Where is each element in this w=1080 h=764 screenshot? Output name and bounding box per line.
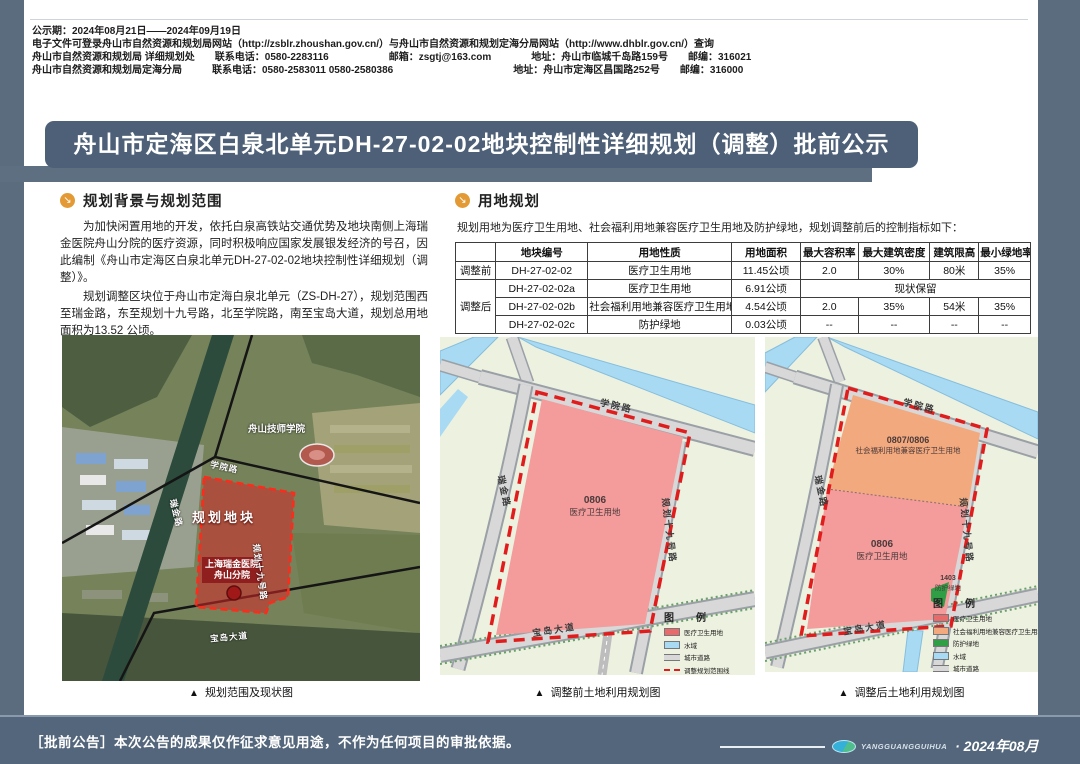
- plot-label: 规划地块: [192, 507, 256, 526]
- legend-item: 调整规划范围线: [664, 665, 755, 675]
- rowgroup-before: 调整前: [456, 262, 496, 280]
- col-green: 最小绿地率: [979, 243, 1031, 262]
- rowgroup-after: 调整后: [456, 280, 496, 334]
- table-row: 调整前 DH-27-02-02 医疗卫生用地 11.45公顷 2.0 30% 8…: [456, 262, 1031, 280]
- boundary-swatch: [664, 669, 680, 671]
- footer-divider: [720, 746, 825, 748]
- publicity-period: 公示期：2024年08月21日——2024年09月19日: [32, 25, 1026, 38]
- legend-item: 城市道路: [664, 652, 755, 662]
- branch-contact: 舟山市自然资源和规划局定海分局 联系电话：0580-2583011 0580-2…: [32, 64, 1026, 77]
- section-bullet-icon: ↘: [60, 193, 75, 208]
- status-kept-cell: 现状保留: [801, 280, 1031, 298]
- background-paragraph: 为加快闲置用地的开发，依托白泉高铁站交通优势及地块南侧上海瑞金医院舟山分院的医疗…: [60, 219, 428, 287]
- website-info: 电子文件可登录舟山市自然资源和规划局网站（http://zsblr.zhoush…: [32, 38, 1026, 51]
- section-landuse: ↘ 用地规划 规划用地为医疗卫生用地、社会福利用地兼容医疗卫生用地及防护绿地，规…: [455, 190, 1031, 334]
- parcel-label-green: 1403 防护绿地: [923, 575, 973, 592]
- col-height: 建筑限高: [930, 243, 979, 262]
- pre-approval-notice: ［批前公告］本次公告的成果仅作征求意见用途，不作为任何项目的审批依据。: [30, 731, 520, 751]
- scope-paragraph: 规划调整区块位于舟山市定海白泉北单元（ZS-DH-27），规划范围西至瑞金路，东…: [60, 289, 428, 340]
- section-background-title: 规划背景与规划范围: [83, 190, 223, 211]
- content-panel: 公示期：2024年08月21日——2024年09月19日 电子文件可登录舟山市自…: [24, 0, 1038, 715]
- caption-marker-icon: ▲: [839, 688, 849, 699]
- water-swatch: [664, 641, 680, 649]
- brand-logo-icon: [832, 740, 856, 753]
- site-map: 舟山技师学院 规划地块 上海瑞金医院舟山分院 学院路 瑞金路 规划十九号路 宝岛…: [62, 335, 420, 681]
- control-indicators-table: 地块编号 用地性质 用地面积 最大容积率 最大建筑密度 建筑限高 最小绿地率 调…: [455, 242, 1031, 334]
- road-swatch: [664, 654, 680, 661]
- water-swatch: [933, 652, 949, 660]
- section-landuse-title: 用地规划: [478, 190, 540, 211]
- pre-map-caption: ▲调整前土地利用规划图: [440, 684, 755, 700]
- post-adjustment-map: 0807/0806 社会福利用地兼容医疗卫生用地 0806 医疗卫生用地 140…: [765, 337, 1038, 672]
- page-title: 舟山市定海区白泉北单元DH-27-02-02地块控制性详细规划（调整）批前公示: [45, 121, 918, 168]
- table-row: DH-27-02-02c 防护绿地 0.03公顷 -- -- -- --: [456, 316, 1031, 334]
- green-swatch: [933, 639, 949, 647]
- site-map-caption: ▲规划范围及现状图: [62, 684, 420, 700]
- caption-marker-icon: ▲: [189, 688, 199, 699]
- col-plot-code: 地块编号: [496, 243, 588, 262]
- section-background: ↘ 规划背景与规划范围 为加快闲置用地的开发，依托白泉高铁站交通优势及地块南侧上…: [60, 190, 428, 342]
- publish-date: · 2024年08月: [955, 736, 1038, 756]
- section-background-head: ↘ 规划背景与规划范围: [60, 190, 428, 211]
- legend-title: 图 例: [933, 595, 1038, 610]
- pre-adjustment-map: 0806 医疗卫生用地 学院路 瑞金路 规划十九号路 宝岛大道 图 例 医疗卫生…: [440, 337, 755, 675]
- parcel-label-medical: 0806 医疗卫生用地: [837, 539, 927, 562]
- section-bullet-icon: ↘: [455, 193, 470, 208]
- legend-item: 水域: [933, 651, 1038, 661]
- col-land-use: 用地性质: [588, 243, 732, 262]
- table-row: DH-27-02-02b 社会福利用地兼容医疗卫生用地 4.54公顷 2.0 3…: [456, 298, 1031, 316]
- landuse-intro: 规划用地为医疗卫生用地、社会福利用地兼容医疗卫生用地及防护绿地，规划调整前后的控…: [457, 219, 1031, 235]
- brand-block: YANGGUANGGUIHUA · 2024年08月: [832, 736, 1038, 756]
- parcel-label-welfare: 0807/0806 社会福利用地兼容医疗卫生用地: [843, 435, 973, 456]
- col-far: 最大容积率: [801, 243, 859, 262]
- section-landuse-head: ↘ 用地规划: [455, 190, 1031, 211]
- legend-before: 图 例 医疗卫生用地 水域 城市道路 调整规划范围线: [664, 609, 755, 675]
- legend-item: 城市道路: [933, 663, 1038, 672]
- medical-swatch: [664, 628, 680, 636]
- legend-title: 图 例: [664, 609, 755, 624]
- post-map-caption: ▲调整后土地利用规划图: [765, 684, 1038, 700]
- college-label: 舟山技师学院: [248, 421, 305, 435]
- header-info: 公示期：2024年08月21日——2024年09月19日 电子文件可登录舟山市自…: [30, 19, 1028, 77]
- bureau-contact: 舟山市自然资源和规划局 详细规划处 联系电话：0580-2283116 邮箱：z…: [32, 51, 1026, 64]
- table-header-row: 地块编号 用地性质 用地面积 最大容积率 最大建筑密度 建筑限高 最小绿地率: [456, 243, 1031, 262]
- poster-page: 公示期：2024年08月21日——2024年09月19日 电子文件可登录舟山市自…: [0, 0, 1080, 764]
- welfare-swatch: [933, 627, 949, 635]
- caption-marker-icon: ▲: [535, 688, 545, 699]
- legend-after: 图 例 医疗卫生用地 社会福利用地兼容医疗卫生用地 防护绿地 水域 城市道路: [933, 595, 1038, 672]
- col-blank: [456, 243, 496, 262]
- medical-swatch: [933, 614, 949, 622]
- col-area: 用地面积: [732, 243, 801, 262]
- legend-item: 水域: [664, 640, 755, 650]
- title-ribbon: [0, 166, 872, 182]
- legend-item: 医疗卫生用地: [664, 627, 755, 637]
- road-swatch: [933, 665, 949, 672]
- col-density: 最大建筑密度: [858, 243, 930, 262]
- legend-item: 社会福利用地兼容医疗卫生用地: [933, 626, 1038, 636]
- legend-item: 医疗卫生用地: [933, 613, 1038, 623]
- legend-item: 防护绿地: [933, 638, 1038, 648]
- brand-name: YANGGUANGGUIHUA: [861, 742, 947, 751]
- footer-bar: ［批前公告］本次公告的成果仅作征求意见用途，不作为任何项目的审批依据。 YANG…: [0, 715, 1080, 764]
- parcel-label: 0806 医疗卫生用地: [550, 495, 640, 518]
- table-row: 调整后 DH-27-02-02a 医疗卫生用地 6.91公顷 现状保留: [456, 280, 1031, 298]
